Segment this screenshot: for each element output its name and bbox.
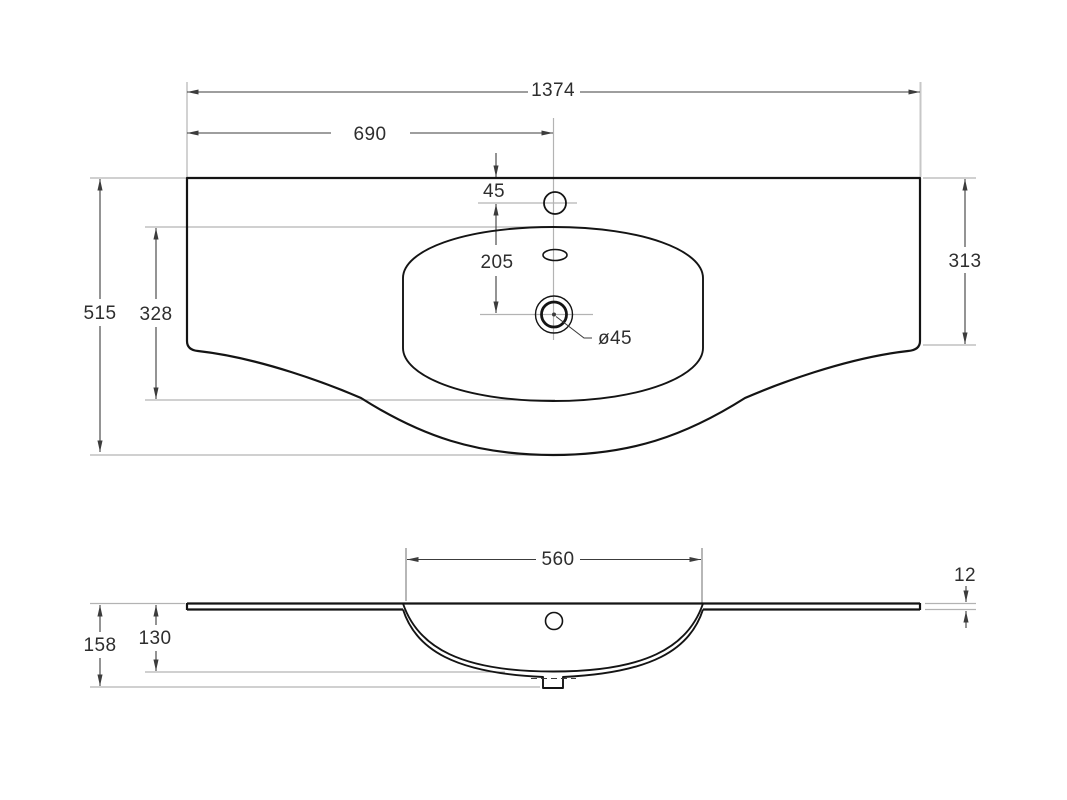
dim-faucet-to-drain: 205 [481,252,514,313]
front-section-view: 560 12 158 130 [84,548,976,688]
dim-label-overall-depth: 515 [84,303,117,324]
dim-basin-depth: 130 [139,605,172,671]
drain-center-dot [552,313,556,317]
dim-label-faucet-to-drain: 205 [481,252,514,273]
dim-faucet-offset: 690 [187,124,553,145]
dim-label-basin-width: 560 [542,549,575,570]
drawing-canvas: 1374 690 45 205 515 328 [0,0,1067,800]
top-view: 1374 690 45 205 515 328 [84,80,982,455]
dim-overall-height: 158 [84,605,117,686]
dim-basin-cutout-depth: 328 [140,228,173,399]
drain-leader-line [556,317,592,339]
dim-label-drain-diameter: ø45 [598,328,632,349]
dim-overall-width: 1374 [187,80,920,101]
dim-label-overall-width: 1374 [531,80,575,101]
dim-label-faucet-setback: 45 [483,181,505,202]
dim-label-basin-cutout-depth: 328 [140,304,173,325]
dim-overall-depth: 515 [84,179,117,452]
dim-label-overall-height: 158 [84,635,117,656]
overflow-hole [543,250,567,261]
dim-side-edge-depth: 313 [949,179,982,344]
dim-top-thickness: 12 [954,565,976,628]
dim-label-side-edge-depth: 313 [949,251,982,272]
dim-basin-width: 560 [407,549,701,570]
dim-label-faucet-offset: 690 [354,124,387,145]
bowl-inner-wall [403,604,703,672]
dim-label-basin-depth: 130 [139,628,172,649]
dim-label-top-thickness: 12 [954,565,976,586]
washbasin-technical-drawing: 1374 690 45 205 515 328 [0,0,1067,800]
bowl-outer-wall [403,610,703,689]
faucet-hole-section [546,613,563,630]
dim-drain-diameter: ø45 [556,317,632,350]
